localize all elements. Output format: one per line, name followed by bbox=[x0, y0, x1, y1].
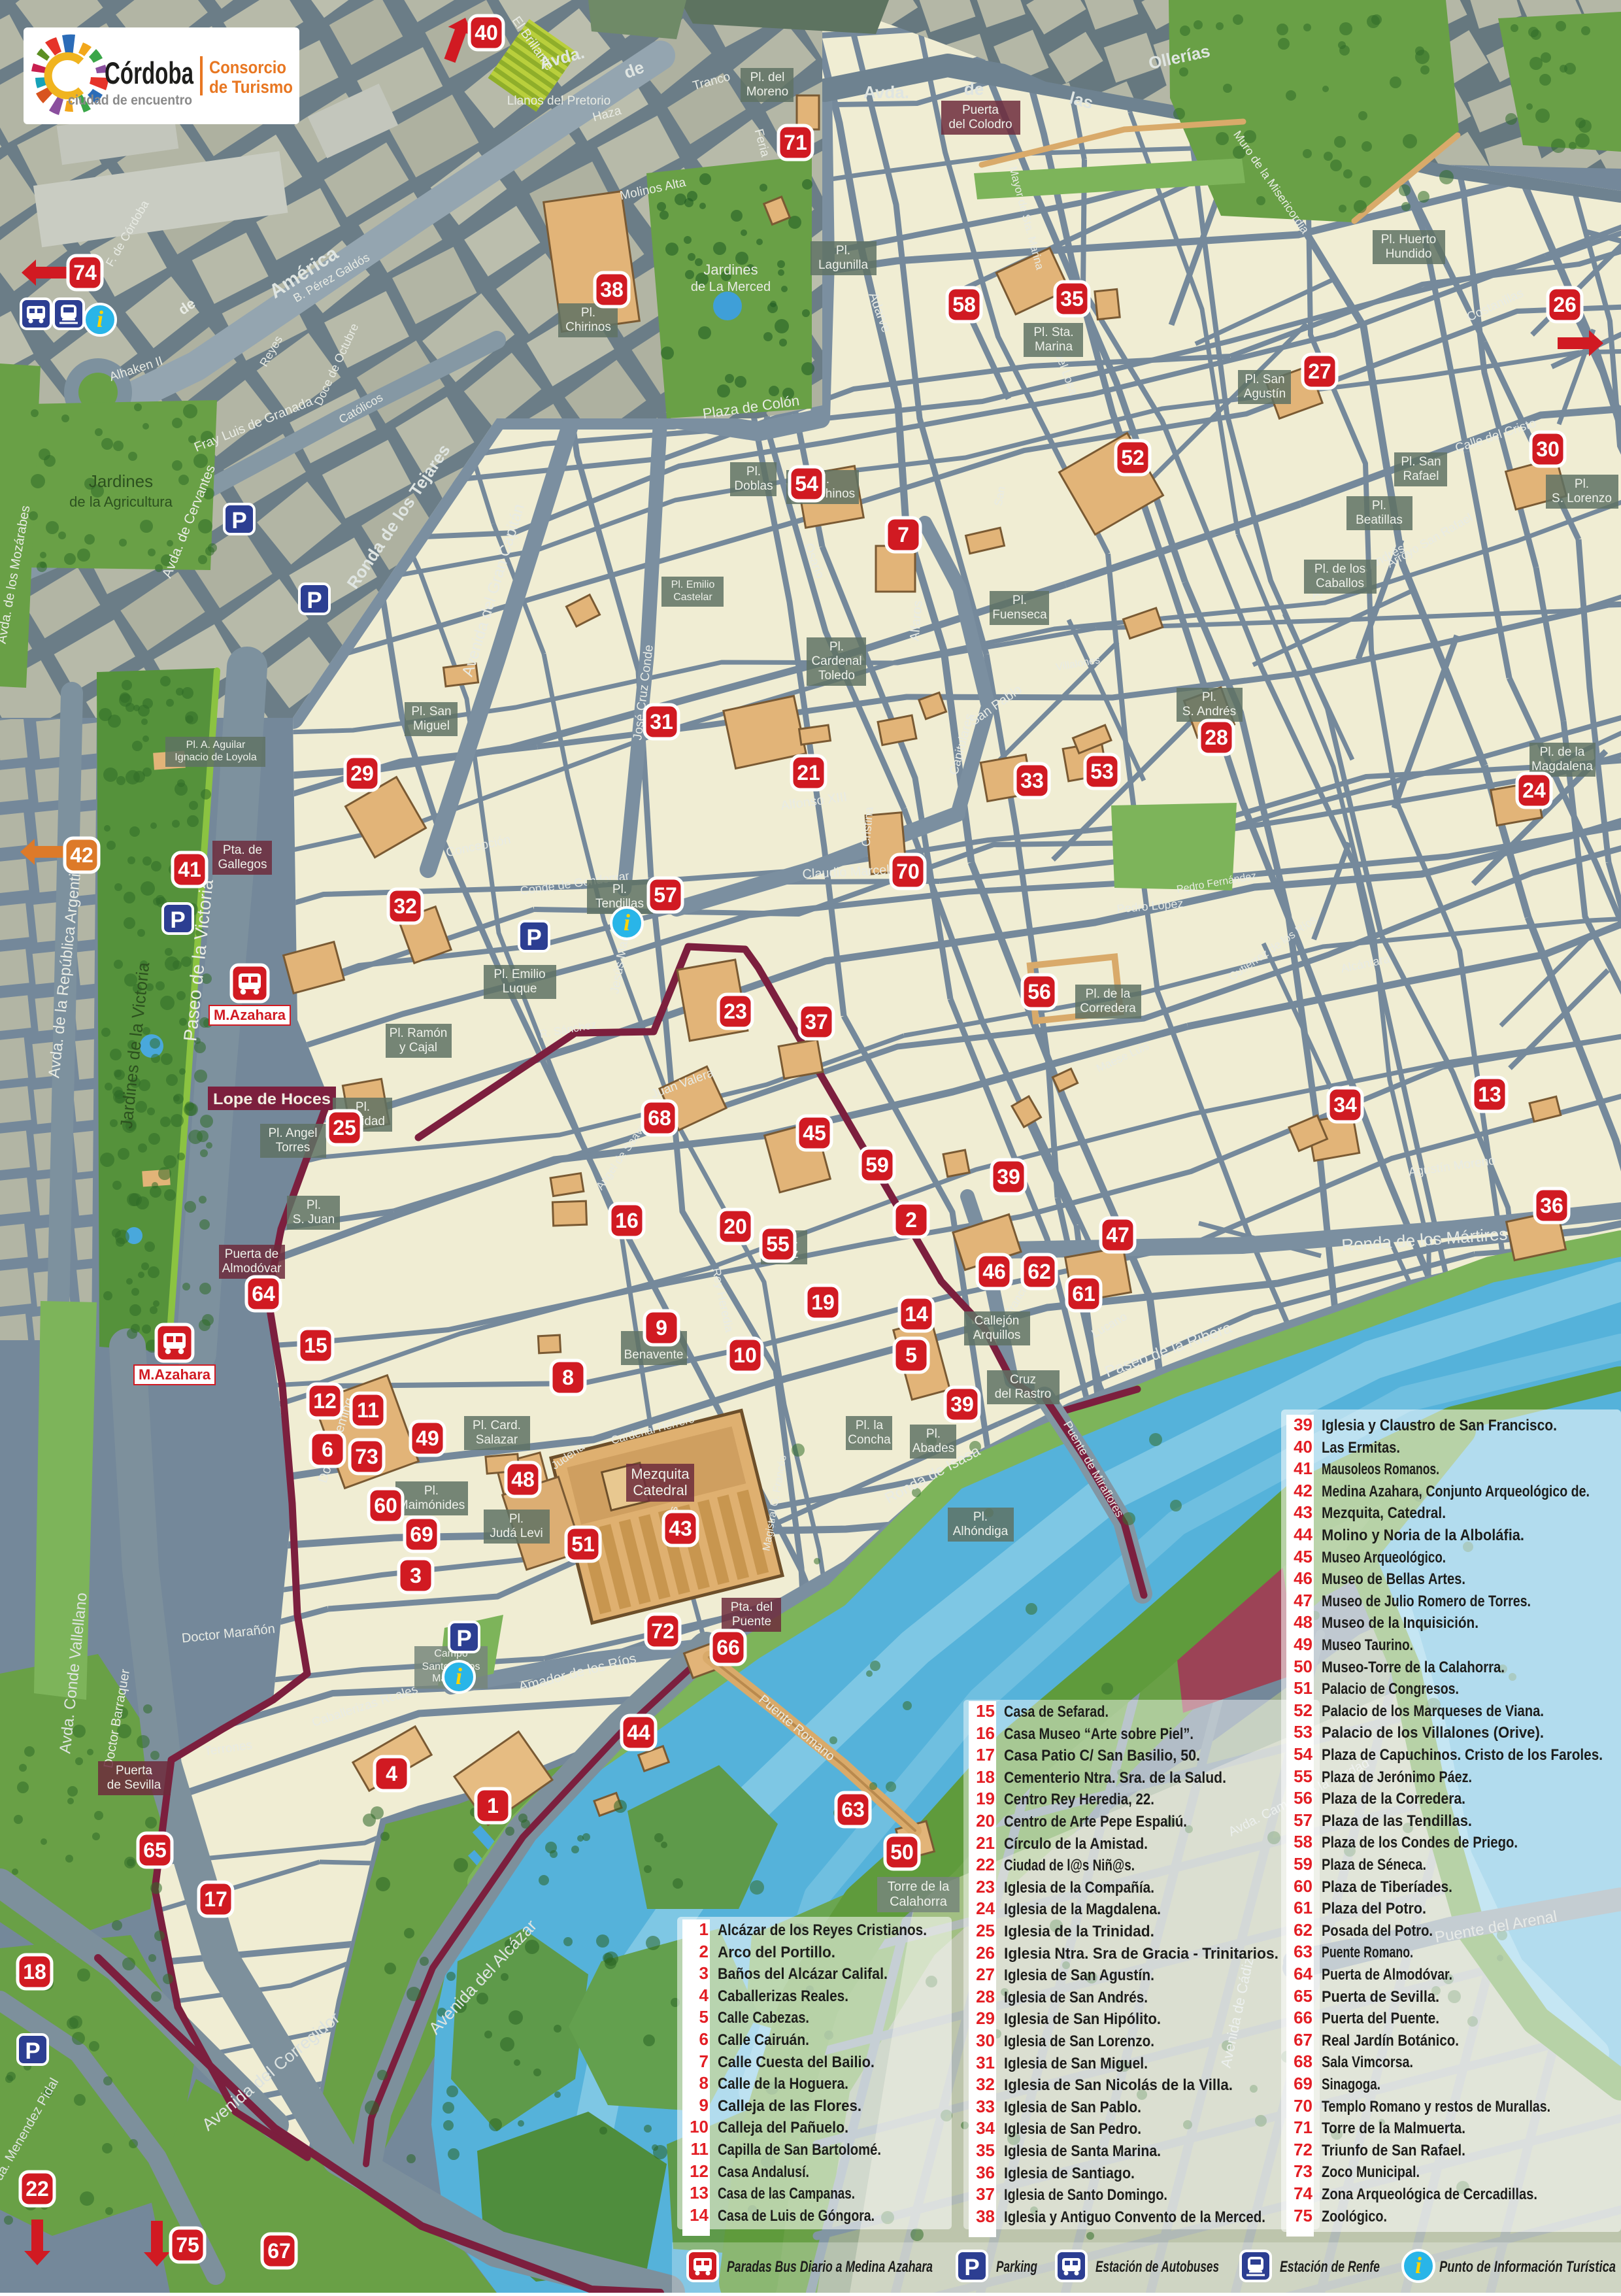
svg-text:Gallegos: Gallegos bbox=[218, 858, 267, 871]
svg-text:i: i bbox=[97, 306, 103, 332]
svg-text:Iglesia de la Magdalena.: Iglesia de la Magdalena. bbox=[1004, 1900, 1161, 1918]
svg-text:42: 42 bbox=[70, 843, 93, 867]
svg-text:61: 61 bbox=[1072, 1282, 1095, 1306]
svg-text:2: 2 bbox=[699, 1942, 709, 1961]
svg-text:Pl. San: Pl. San bbox=[1245, 373, 1284, 386]
svg-text:47: 47 bbox=[1106, 1223, 1129, 1247]
svg-text:Salazar: Salazar bbox=[476, 1433, 518, 1447]
svg-text:1: 1 bbox=[487, 1794, 499, 1817]
svg-text:6: 6 bbox=[699, 2029, 709, 2049]
svg-text:71: 71 bbox=[1294, 2118, 1312, 2137]
svg-text:P: P bbox=[170, 907, 185, 933]
svg-text:Iglesia de San Andrés.: Iglesia de San Andrés. bbox=[1004, 1989, 1148, 2006]
svg-text:Pl.: Pl. bbox=[581, 306, 595, 320]
svg-text:8: 8 bbox=[699, 2073, 709, 2093]
svg-text:S. Juan: S. Juan bbox=[293, 1213, 335, 1226]
svg-text:31: 31 bbox=[976, 2053, 995, 2072]
svg-text:Torres: Torres bbox=[276, 1141, 310, 1155]
svg-text:11: 11 bbox=[691, 2139, 709, 2159]
svg-text:S. Lorenzo: S. Lorenzo bbox=[1552, 492, 1612, 505]
svg-text:75: 75 bbox=[176, 2233, 199, 2257]
svg-text:Cardenal: Cardenal bbox=[811, 654, 861, 668]
svg-text:M.Azahara: M.Azahara bbox=[139, 1366, 211, 1383]
svg-text:Centro Rey Heredia, 22.: Centro Rey Heredia, 22. bbox=[1004, 1791, 1154, 1808]
svg-text:Capilla de San Bartolomé.: Capilla de San Bartolomé. bbox=[718, 2141, 881, 2159]
svg-text:56: 56 bbox=[1294, 1788, 1312, 1808]
svg-text:Palacio de Congresos.: Palacio de Congresos. bbox=[1322, 1680, 1459, 1698]
svg-text:Pl. Ramón: Pl. Ramón bbox=[390, 1026, 448, 1040]
svg-text:de Sevilla: de Sevilla bbox=[107, 1778, 161, 1792]
svg-text:64: 64 bbox=[1294, 1964, 1312, 1984]
svg-text:Zoco Municipal.: Zoco Municipal. bbox=[1322, 2163, 1420, 2181]
svg-text:34: 34 bbox=[976, 2118, 995, 2138]
svg-text:31: 31 bbox=[650, 710, 673, 734]
svg-text:Plaza de las Tendillas.: Plaza de las Tendillas. bbox=[1322, 1812, 1472, 1830]
svg-text:70: 70 bbox=[896, 860, 920, 883]
svg-text:Plaza del Potro.: Plaza del Potro. bbox=[1322, 1900, 1426, 1917]
svg-text:64: 64 bbox=[252, 1282, 275, 1306]
svg-text:9: 9 bbox=[656, 1316, 667, 1340]
svg-text:44: 44 bbox=[627, 1721, 650, 1744]
svg-text:Museo-Torre de la Calahorra.: Museo-Torre de la Calahorra. bbox=[1322, 1659, 1505, 1676]
svg-text:Iglesia y Antiguo Convento de: Iglesia y Antiguo Convento de la Merced. bbox=[1004, 2208, 1265, 2226]
svg-text:7: 7 bbox=[699, 2051, 709, 2071]
svg-text:70: 70 bbox=[1294, 2096, 1312, 2116]
svg-text:Almodóvar: Almodóvar bbox=[222, 1262, 282, 1275]
svg-text:14: 14 bbox=[690, 2205, 709, 2225]
svg-text:58: 58 bbox=[952, 293, 976, 316]
svg-text:50: 50 bbox=[890, 1840, 914, 1864]
svg-text:Punto de Información Turística: Punto de Información Turística bbox=[1439, 2258, 1616, 2276]
svg-text:36: 36 bbox=[1540, 1194, 1563, 1217]
svg-text:P: P bbox=[231, 508, 246, 533]
svg-text:60: 60 bbox=[1294, 1876, 1312, 1896]
svg-text:67: 67 bbox=[267, 2239, 291, 2263]
svg-text:Pl.: Pl. bbox=[1012, 594, 1027, 607]
svg-text:Llanos del Pretorio: Llanos del Pretorio bbox=[507, 94, 610, 108]
svg-text:60: 60 bbox=[374, 1494, 397, 1517]
svg-text:Iglesia de San Lorenzo.: Iglesia de San Lorenzo. bbox=[1004, 2033, 1154, 2050]
svg-text:68: 68 bbox=[1294, 2051, 1312, 2071]
svg-text:62: 62 bbox=[1028, 1260, 1051, 1283]
svg-text:37: 37 bbox=[976, 2184, 995, 2204]
svg-text:Catedral: Catedral bbox=[633, 1482, 687, 1498]
svg-text:Casa Andalusí.: Casa Andalusí. bbox=[718, 2163, 809, 2181]
svg-text:25: 25 bbox=[333, 1116, 356, 1140]
svg-text:13: 13 bbox=[1478, 1083, 1501, 1106]
svg-text:22: 22 bbox=[976, 1855, 995, 1874]
svg-text:Museo de la Inquisición.: Museo de la Inquisición. bbox=[1322, 1614, 1479, 1632]
svg-text:Pl.: Pl. bbox=[1202, 690, 1216, 704]
svg-text:68: 68 bbox=[648, 1106, 671, 1130]
svg-text:Calleja del Pañuelo.: Calleja del Pañuelo. bbox=[718, 2119, 848, 2136]
svg-text:Callejón: Callejón bbox=[975, 1314, 1020, 1328]
svg-text:Mezquita: Mezquita bbox=[631, 1466, 690, 1482]
svg-text:Pl. de la: Pl. de la bbox=[1540, 745, 1585, 759]
svg-text:Miguel: Miguel bbox=[413, 719, 450, 733]
svg-text:32: 32 bbox=[976, 2074, 995, 2094]
svg-text:4: 4 bbox=[699, 1985, 709, 2005]
svg-text:Museo de Julio Romero de Torre: Museo de Julio Romero de Torres. bbox=[1322, 1593, 1531, 1610]
svg-text:Pl. del: Pl. del bbox=[750, 71, 785, 84]
svg-text:Calle Cairuán.: Calle Cairuán. bbox=[718, 2031, 809, 2049]
svg-text:Iglesia Ntra. Sra de Gracia -: Iglesia Ntra. Sra de Gracia - Trinitario… bbox=[1004, 1945, 1278, 1963]
svg-text:Puerta del Puente.: Puerta del Puente. bbox=[1322, 2010, 1439, 2027]
svg-text:26: 26 bbox=[1553, 293, 1577, 316]
svg-text:Iglesia y Claustro de San Fran: Iglesia y Claustro de San Francisco. bbox=[1322, 1417, 1557, 1434]
svg-text:Córdoba: Córdoba bbox=[105, 56, 194, 90]
svg-text:29: 29 bbox=[976, 2008, 995, 2028]
svg-text:19: 19 bbox=[811, 1291, 835, 1314]
svg-text:42: 42 bbox=[1294, 1481, 1312, 1500]
svg-text:5: 5 bbox=[699, 2007, 709, 2027]
svg-text:Corredera: Corredera bbox=[1080, 1002, 1136, 1015]
svg-text:16: 16 bbox=[615, 1209, 639, 1232]
svg-text:i: i bbox=[456, 1663, 462, 1689]
svg-text:Pl. de los: Pl. de los bbox=[1314, 562, 1365, 576]
svg-text:Pl. San: Pl. San bbox=[1401, 455, 1441, 469]
svg-text:43: 43 bbox=[1294, 1502, 1312, 1522]
svg-text:Museo Taurino.: Museo Taurino. bbox=[1322, 1636, 1413, 1654]
svg-text:Pl.: Pl. bbox=[612, 883, 627, 896]
svg-text:Casa de Luis de Góngora.: Casa de Luis de Góngora. bbox=[718, 2207, 875, 2225]
svg-text:73: 73 bbox=[355, 1445, 378, 1468]
svg-text:del Colodro: del Colodro bbox=[948, 118, 1012, 131]
svg-text:49: 49 bbox=[1294, 1634, 1312, 1654]
svg-text:Zona Arqueológica de Cercadill: Zona Arqueológica de Cercadillas. bbox=[1322, 2186, 1537, 2203]
svg-text:55: 55 bbox=[766, 1232, 790, 1256]
svg-text:Casa Museo “Arte sobre Piel”.: Casa Museo “Arte sobre Piel”. bbox=[1004, 1725, 1194, 1743]
svg-text:46: 46 bbox=[982, 1260, 1006, 1283]
svg-text:S. Andrés: S. Andrés bbox=[1182, 705, 1236, 718]
svg-text:Rafael: Rafael bbox=[1403, 469, 1439, 483]
svg-text:40: 40 bbox=[475, 21, 498, 44]
svg-text:59: 59 bbox=[1294, 1854, 1312, 1874]
svg-text:39: 39 bbox=[950, 1393, 974, 1416]
svg-text:Plaza de Jerónimo Páez.: Plaza de Jerónimo Páez. bbox=[1322, 1768, 1472, 1786]
svg-text:63: 63 bbox=[841, 1798, 865, 1821]
svg-text:69: 69 bbox=[1294, 2074, 1312, 2093]
svg-text:22: 22 bbox=[25, 2177, 49, 2201]
svg-text:Moreno: Moreno bbox=[746, 85, 788, 99]
svg-text:Calleja de las Flores.: Calleja de las Flores. bbox=[718, 2097, 861, 2115]
svg-text:58: 58 bbox=[1294, 1832, 1312, 1851]
svg-text:Plaza de Tiberíades.: Plaza de Tiberíades. bbox=[1322, 1878, 1452, 1896]
svg-text:Calle de la Hoguera.: Calle de la Hoguera. bbox=[718, 2075, 848, 2093]
svg-text:13: 13 bbox=[690, 2183, 709, 2203]
svg-text:Puerta: Puerta bbox=[116, 1764, 152, 1778]
svg-text:27: 27 bbox=[1308, 360, 1331, 383]
svg-text:66: 66 bbox=[1294, 2008, 1312, 2027]
svg-text:Pl.: Pl. bbox=[1575, 477, 1589, 491]
svg-text:29: 29 bbox=[350, 762, 374, 785]
svg-text:39: 39 bbox=[1294, 1415, 1312, 1434]
svg-text:57: 57 bbox=[1294, 1810, 1312, 1830]
svg-text:15: 15 bbox=[976, 1701, 995, 1721]
svg-text:33: 33 bbox=[1020, 769, 1044, 792]
svg-text:45: 45 bbox=[803, 1121, 826, 1145]
svg-text:63: 63 bbox=[1294, 1942, 1312, 1961]
svg-text:11: 11 bbox=[357, 1398, 379, 1422]
svg-text:Casa Patio C/ San Basilio, 50.: Casa Patio C/ San Basilio, 50. bbox=[1004, 1747, 1200, 1764]
svg-text:17: 17 bbox=[204, 1887, 227, 1911]
svg-text:Arco del Portillo.: Arco del Portillo. bbox=[718, 1944, 835, 1961]
svg-text:Lope de Hoces: Lope de Hoces bbox=[213, 1090, 331, 1108]
svg-text:Iglesia de San Agustín.: Iglesia de San Agustín. bbox=[1004, 1967, 1154, 1984]
svg-text:54: 54 bbox=[795, 472, 818, 496]
svg-text:28: 28 bbox=[1205, 726, 1228, 749]
svg-text:Benavente: Benavente bbox=[624, 1348, 684, 1362]
svg-text:47: 47 bbox=[1294, 1591, 1312, 1610]
svg-text:Casa de las Campanas.: Casa de las Campanas. bbox=[718, 2185, 855, 2203]
svg-text:Pl. Sta.: Pl. Sta. bbox=[1033, 326, 1073, 339]
svg-text:9: 9 bbox=[699, 2095, 709, 2115]
svg-text:51: 51 bbox=[571, 1532, 595, 1556]
svg-text:Puerta: Puerta bbox=[962, 103, 999, 117]
svg-text:7: 7 bbox=[897, 523, 909, 547]
svg-text:12: 12 bbox=[313, 1389, 337, 1413]
svg-text:P: P bbox=[456, 1626, 471, 1651]
svg-text:de: de bbox=[964, 79, 984, 99]
svg-text:P: P bbox=[526, 925, 541, 951]
svg-text:Concha: Concha bbox=[848, 1433, 891, 1447]
svg-text:39: 39 bbox=[997, 1165, 1020, 1189]
svg-text:48: 48 bbox=[511, 1468, 535, 1491]
svg-text:10: 10 bbox=[690, 2117, 709, 2136]
svg-text:Pl. Emilio: Pl. Emilio bbox=[493, 968, 545, 981]
svg-text:Marina: Marina bbox=[1035, 340, 1073, 354]
svg-text:Iglesia de San Pablo.: Iglesia de San Pablo. bbox=[1004, 2099, 1141, 2116]
svg-text:Ciudad de l@s Niñ@s.: Ciudad de l@s Niñ@s. bbox=[1004, 1857, 1135, 1874]
svg-text:de Turismo: de Turismo bbox=[209, 77, 293, 97]
svg-text:17: 17 bbox=[976, 1745, 995, 1764]
svg-text:53: 53 bbox=[1294, 1722, 1312, 1742]
svg-text:Pl. Angel: Pl. Angel bbox=[269, 1126, 318, 1140]
svg-text:P: P bbox=[964, 2255, 979, 2280]
svg-text:Museo Arqueológico.: Museo Arqueológico. bbox=[1322, 1549, 1446, 1566]
svg-text:Pl. la: Pl. la bbox=[856, 1419, 884, 1432]
svg-text:Torre de la: Torre de la bbox=[888, 1880, 950, 1894]
svg-text:M.Azahara: M.Azahara bbox=[214, 1007, 286, 1023]
svg-text:Calle Cabezas.: Calle Cabezas. bbox=[718, 2009, 809, 2027]
svg-text:Templo Romano y restos de Mura: Templo Romano y restos de Murallas. bbox=[1322, 2098, 1550, 2116]
svg-text:40: 40 bbox=[1294, 1437, 1312, 1457]
svg-text:38: 38 bbox=[600, 278, 624, 301]
svg-text:44: 44 bbox=[1294, 1525, 1312, 1544]
svg-text:Palacio de los Villalones (Ori: Palacio de los Villalones (Orive). bbox=[1322, 1724, 1544, 1742]
svg-text:Real Jardín Botánico.: Real Jardín Botánico. bbox=[1322, 2032, 1459, 2050]
svg-text:Centro de Arte Pepe Espaliú.: Centro de Arte Pepe Espaliú. bbox=[1004, 1813, 1187, 1831]
svg-text:Ignacio de Loyola: Ignacio de Loyola bbox=[175, 752, 257, 763]
svg-text:Iglesia de San Miguel.: Iglesia de San Miguel. bbox=[1004, 2055, 1148, 2072]
svg-text:4: 4 bbox=[386, 1762, 397, 1785]
svg-text:54: 54 bbox=[1294, 1744, 1312, 1764]
svg-text:21: 21 bbox=[976, 1833, 995, 1853]
svg-text:67: 67 bbox=[1294, 2030, 1312, 2050]
svg-text:Posada del Potro.: Posada del Potro. bbox=[1322, 1922, 1433, 1940]
svg-text:52: 52 bbox=[1121, 446, 1145, 469]
svg-text:Calle Cuesta del Bailio.: Calle Cuesta del Bailio. bbox=[718, 2053, 875, 2071]
svg-text:Doblas: Doblas bbox=[734, 479, 773, 493]
svg-text:43: 43 bbox=[669, 1517, 692, 1540]
svg-text:Calahorra: Calahorra bbox=[890, 1895, 948, 1909]
svg-text:P: P bbox=[307, 588, 322, 613]
svg-text:Pl. Emilio: Pl. Emilio bbox=[671, 579, 715, 590]
svg-text:Las Ermitas.: Las Ermitas. bbox=[1322, 1439, 1400, 1457]
svg-text:Plaza de la Corredera.: Plaza de la Corredera. bbox=[1322, 1790, 1465, 1808]
svg-text:Iglesia de San Nicolás de la V: Iglesia de San Nicolás de la Villa. bbox=[1004, 2076, 1233, 2094]
svg-text:65: 65 bbox=[1294, 1986, 1312, 2006]
svg-text:i: i bbox=[624, 909, 630, 936]
svg-text:Sinagoga.: Sinagoga. bbox=[1322, 2076, 1380, 2093]
svg-text:19: 19 bbox=[976, 1789, 995, 1808]
svg-text:45: 45 bbox=[1294, 1547, 1312, 1566]
svg-text:5: 5 bbox=[905, 1343, 917, 1367]
svg-text:75: 75 bbox=[1294, 2206, 1312, 2225]
svg-text:Iglesia de Santa Marina.: Iglesia de Santa Marina. bbox=[1004, 2142, 1161, 2160]
svg-text:55: 55 bbox=[1294, 1766, 1312, 1786]
svg-text:8: 8 bbox=[562, 1366, 574, 1389]
svg-text:72: 72 bbox=[1294, 2140, 1312, 2159]
svg-text:46: 46 bbox=[1294, 1568, 1312, 1588]
svg-text:y Cajal: y Cajal bbox=[399, 1041, 437, 1055]
svg-text:3: 3 bbox=[410, 1564, 422, 1587]
svg-text:56: 56 bbox=[1028, 980, 1051, 1004]
svg-text:Mezquita, Catedral.: Mezquita, Catedral. bbox=[1322, 1504, 1446, 1522]
svg-text:Avda.: Avda. bbox=[863, 82, 909, 102]
svg-text:Medina Azahara, Conjunto Arque: Medina Azahara, Conjunto Arqueológico de… bbox=[1322, 1483, 1590, 1500]
svg-text:69: 69 bbox=[410, 1523, 433, 1546]
svg-text:Paradas Bus Diario a Medina Az: Paradas Bus Diario a Medina Azahara bbox=[727, 2258, 933, 2276]
svg-text:Museo de Bellas Artes.: Museo de Bellas Artes. bbox=[1322, 1570, 1465, 1588]
svg-text:Puerta de Almodóvar.: Puerta de Almodóvar. bbox=[1322, 1966, 1452, 1984]
svg-text:Plaza de Séneca.: Plaza de Séneca. bbox=[1322, 1856, 1426, 1874]
svg-text:18: 18 bbox=[23, 1960, 46, 1984]
svg-text:Pl. San: Pl. San bbox=[411, 705, 451, 718]
svg-text:53: 53 bbox=[1090, 760, 1114, 783]
svg-text:Estación de Renfe: Estación de Renfe bbox=[1280, 2258, 1380, 2276]
svg-text:P: P bbox=[25, 2038, 40, 2064]
svg-text:1: 1 bbox=[699, 1919, 709, 1939]
svg-text:23: 23 bbox=[976, 1877, 995, 1897]
svg-text:Pl. A. Aguilar: Pl. A. Aguilar bbox=[186, 739, 246, 751]
svg-text:41: 41 bbox=[178, 858, 201, 881]
svg-text:Pl.: Pl. bbox=[829, 640, 844, 654]
svg-text:48: 48 bbox=[1294, 1612, 1312, 1632]
svg-text:Judá Levi: Judá Levi bbox=[490, 1527, 543, 1540]
svg-text:Chirinos: Chirinos bbox=[565, 320, 611, 334]
svg-text:65: 65 bbox=[143, 1838, 167, 1862]
svg-text:Baños del Alcázar Califal.: Baños del Alcázar Califal. bbox=[718, 1965, 888, 1983]
svg-text:Iglesia de Santo Domingo.: Iglesia de Santo Domingo. bbox=[1004, 2186, 1167, 2204]
svg-text:Iglesia de la Trinidad.: Iglesia de la Trinidad. bbox=[1004, 1923, 1154, 1940]
svg-text:74: 74 bbox=[73, 261, 97, 284]
svg-text:20: 20 bbox=[724, 1215, 747, 1238]
svg-text:Plaza de los Condes de Priego.: Plaza de los Condes de Priego. bbox=[1322, 1834, 1518, 1851]
svg-text:Palacio de los Marqueses de Vi: Palacio de los Marqueses de Viana. bbox=[1322, 1702, 1544, 1720]
svg-text:73: 73 bbox=[1294, 2161, 1312, 2181]
svg-text:Pl.: Pl. bbox=[836, 244, 850, 258]
svg-text:Pl.: Pl. bbox=[509, 1512, 524, 1526]
svg-text:59: 59 bbox=[865, 1153, 889, 1177]
svg-text:Puente Romano.: Puente Romano. bbox=[1322, 1944, 1413, 1961]
svg-text:12: 12 bbox=[690, 2161, 709, 2181]
svg-text:38: 38 bbox=[976, 2206, 995, 2226]
svg-text:Triunfo de San Rafael.: Triunfo de San Rafael. bbox=[1322, 2142, 1465, 2159]
svg-text:57: 57 bbox=[654, 883, 677, 907]
svg-text:Molino y Noria de la Alboláfia: Molino y Noria de la Alboláfia. bbox=[1322, 1527, 1524, 1544]
svg-text:72: 72 bbox=[651, 1619, 675, 1643]
svg-text:50: 50 bbox=[1294, 1657, 1312, 1676]
svg-text:6: 6 bbox=[322, 1438, 333, 1461]
svg-text:del Rastro: del Rastro bbox=[995, 1387, 1052, 1401]
svg-text:35: 35 bbox=[1060, 287, 1084, 311]
svg-text:Iglesia de la Compañía.: Iglesia de la Compañía. bbox=[1004, 1879, 1154, 1897]
svg-text:Jardines: Jardines bbox=[89, 471, 153, 491]
svg-text:Maimónides: Maimónides bbox=[398, 1498, 465, 1512]
svg-text:Cementerio Ntra. Sra. de la Sa: Cementerio Ntra. Sra. de la Salud. bbox=[1004, 1769, 1226, 1787]
svg-text:Puente: Puente bbox=[732, 1615, 771, 1629]
svg-text:35: 35 bbox=[976, 2140, 995, 2160]
svg-text:23: 23 bbox=[724, 1000, 747, 1023]
svg-text:26: 26 bbox=[976, 1943, 995, 1963]
svg-text:Plaza de Capuchinos. Cristo de: Plaza de Capuchinos. Cristo de los Farol… bbox=[1322, 1746, 1603, 1764]
svg-text:10: 10 bbox=[733, 1343, 757, 1367]
svg-text:61: 61 bbox=[1294, 1898, 1312, 1917]
svg-text:Puerta de Sevilla.: Puerta de Sevilla. bbox=[1322, 1988, 1439, 2006]
svg-text:Agustín: Agustín bbox=[1244, 387, 1286, 401]
svg-text:Caballerizas Reales.: Caballerizas Reales. bbox=[718, 1987, 848, 2005]
svg-text:3: 3 bbox=[699, 1963, 709, 1983]
svg-text:Iglesia de Santiago.: Iglesia de Santiago. bbox=[1004, 2165, 1135, 2182]
svg-text:Pl. de la: Pl. de la bbox=[1086, 987, 1131, 1001]
svg-text:Sala Vimcorsa.: Sala Vimcorsa. bbox=[1322, 2053, 1413, 2071]
svg-text:Iglesia de San Hipólito.: Iglesia de San Hipólito. bbox=[1004, 2010, 1161, 2028]
svg-text:ciudad de encuentro: ciudad de encuentro bbox=[68, 93, 192, 108]
svg-text:Estación de Autobuses: Estación de Autobuses bbox=[1095, 2258, 1219, 2276]
svg-text:36: 36 bbox=[976, 2163, 995, 2182]
svg-text:24: 24 bbox=[1522, 779, 1546, 802]
svg-text:49: 49 bbox=[416, 1427, 439, 1450]
svg-text:20: 20 bbox=[976, 1811, 995, 1831]
svg-text:Hundido: Hundido bbox=[1386, 247, 1432, 261]
svg-text:Pl. Card.: Pl. Card. bbox=[473, 1419, 521, 1432]
svg-text:Castelar: Castelar bbox=[673, 592, 712, 603]
svg-text:Pl.: Pl. bbox=[307, 1198, 321, 1212]
svg-text:18: 18 bbox=[976, 1767, 995, 1787]
svg-text:21: 21 bbox=[797, 761, 820, 785]
svg-text:25: 25 bbox=[976, 1921, 995, 1940]
svg-text:Iglesia de San Pedro.: Iglesia de San Pedro. bbox=[1004, 2120, 1141, 2138]
svg-text:15: 15 bbox=[304, 1334, 327, 1357]
svg-text:52: 52 bbox=[1294, 1700, 1312, 1720]
svg-text:74: 74 bbox=[1294, 2184, 1312, 2203]
svg-text:Arquillos: Arquillos bbox=[973, 1328, 1021, 1342]
svg-text:37: 37 bbox=[805, 1010, 828, 1034]
svg-text:28: 28 bbox=[976, 1987, 995, 2006]
svg-text:Beatillas: Beatillas bbox=[1356, 513, 1403, 527]
svg-text:Puerta de: Puerta de bbox=[225, 1247, 278, 1261]
svg-text:Pl.: Pl. bbox=[746, 465, 761, 479]
svg-text:34: 34 bbox=[1333, 1093, 1357, 1117]
svg-text:Toledo: Toledo bbox=[818, 669, 855, 683]
svg-text:Alcázar de los Reyes Cristiano: Alcázar de los Reyes Cristianos. bbox=[718, 1921, 927, 1939]
svg-text:2: 2 bbox=[905, 1208, 917, 1232]
svg-text:Lagunilla: Lagunilla bbox=[818, 258, 868, 272]
svg-text:Parking: Parking bbox=[996, 2258, 1037, 2276]
svg-text:Pta. del: Pta. del bbox=[731, 1600, 773, 1614]
svg-text:30: 30 bbox=[976, 2031, 995, 2050]
